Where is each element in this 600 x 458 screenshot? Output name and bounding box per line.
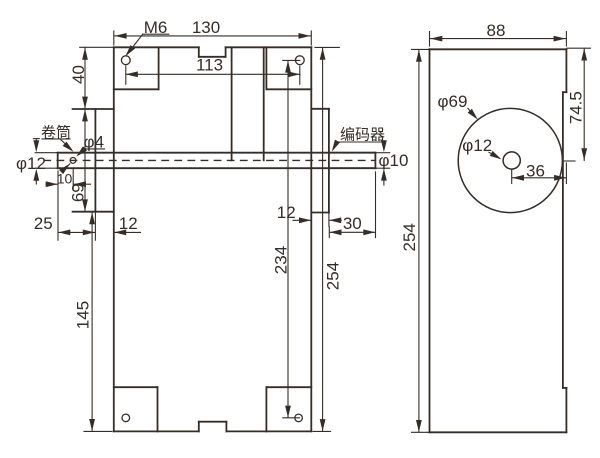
svg-text:88: 88 [487, 21, 506, 40]
svg-text:12: 12 [277, 203, 296, 222]
svg-text:145: 145 [74, 301, 93, 329]
svg-text:254: 254 [324, 262, 343, 290]
svg-text:36: 36 [526, 161, 545, 180]
svg-text:φ4: φ4 [84, 132, 104, 151]
svg-text:φ69: φ69 [438, 92, 468, 111]
svg-text:130: 130 [192, 18, 220, 37]
svg-text:φ12: φ12 [462, 136, 492, 155]
svg-text:卷筒: 卷筒 [41, 124, 71, 141]
svg-text:234: 234 [272, 246, 291, 274]
svg-text:74.5: 74.5 [566, 91, 585, 124]
svg-text:编码器: 编码器 [340, 127, 385, 144]
svg-text:M6: M6 [144, 18, 168, 37]
svg-text:12: 12 [119, 214, 138, 233]
svg-text:φ10: φ10 [379, 151, 409, 170]
svg-text:113: 113 [196, 55, 223, 74]
svg-text:φ12: φ12 [16, 154, 46, 173]
svg-text:10: 10 [57, 170, 73, 186]
svg-text:25: 25 [34, 214, 53, 233]
svg-text:30: 30 [343, 214, 362, 233]
svg-text:254: 254 [400, 223, 419, 251]
svg-text:40: 40 [69, 65, 88, 84]
